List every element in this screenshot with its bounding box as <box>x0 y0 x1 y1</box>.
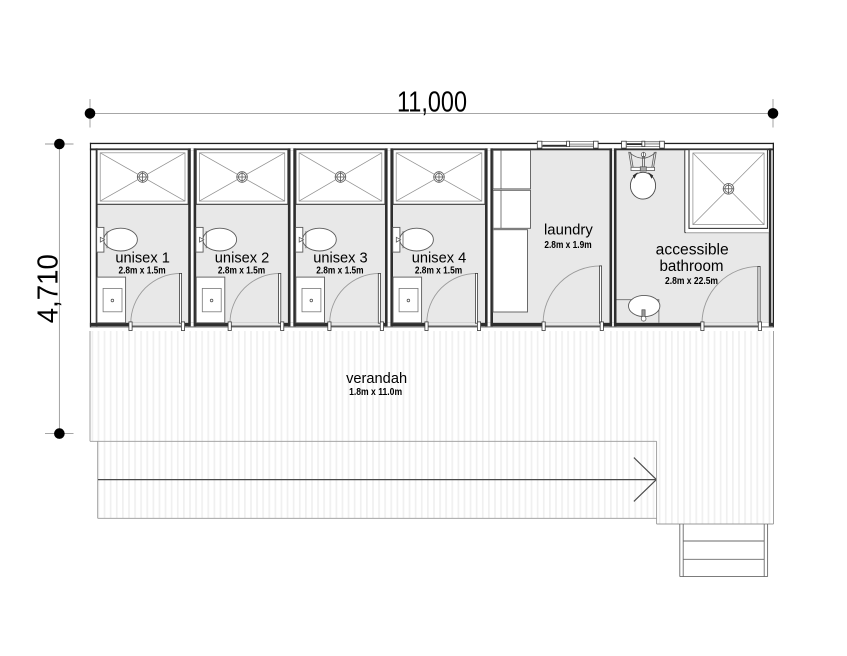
svg-text:verandah: verandah <box>346 370 407 387</box>
svg-text:2.8m x 1.9m: 2.8m x 1.9m <box>544 240 591 251</box>
svg-text:2.8m x 1.5m: 2.8m x 1.5m <box>218 266 265 277</box>
svg-text:accessible: accessible <box>656 241 729 258</box>
svg-text:4,710: 4,710 <box>33 254 65 323</box>
svg-text:laundry: laundry <box>544 222 593 239</box>
svg-text:unisex 2: unisex 2 <box>215 250 270 267</box>
svg-text:2.8m x 22.5m: 2.8m x 22.5m <box>665 276 718 287</box>
svg-text:1.8m x 11.0m: 1.8m x 11.0m <box>349 387 402 398</box>
svg-text:2.8m x 1.5m: 2.8m x 1.5m <box>316 266 363 277</box>
svg-text:2.8m x 1.5m: 2.8m x 1.5m <box>415 266 462 277</box>
svg-text:unisex 3: unisex 3 <box>313 250 368 267</box>
svg-text:unisex 1: unisex 1 <box>115 250 170 267</box>
svg-text:2.8m x 1.5m: 2.8m x 1.5m <box>118 266 165 277</box>
svg-text:11,000: 11,000 <box>397 86 467 118</box>
svg-text:unisex 4: unisex 4 <box>412 250 467 267</box>
svg-text:bathroom: bathroom <box>660 258 724 275</box>
